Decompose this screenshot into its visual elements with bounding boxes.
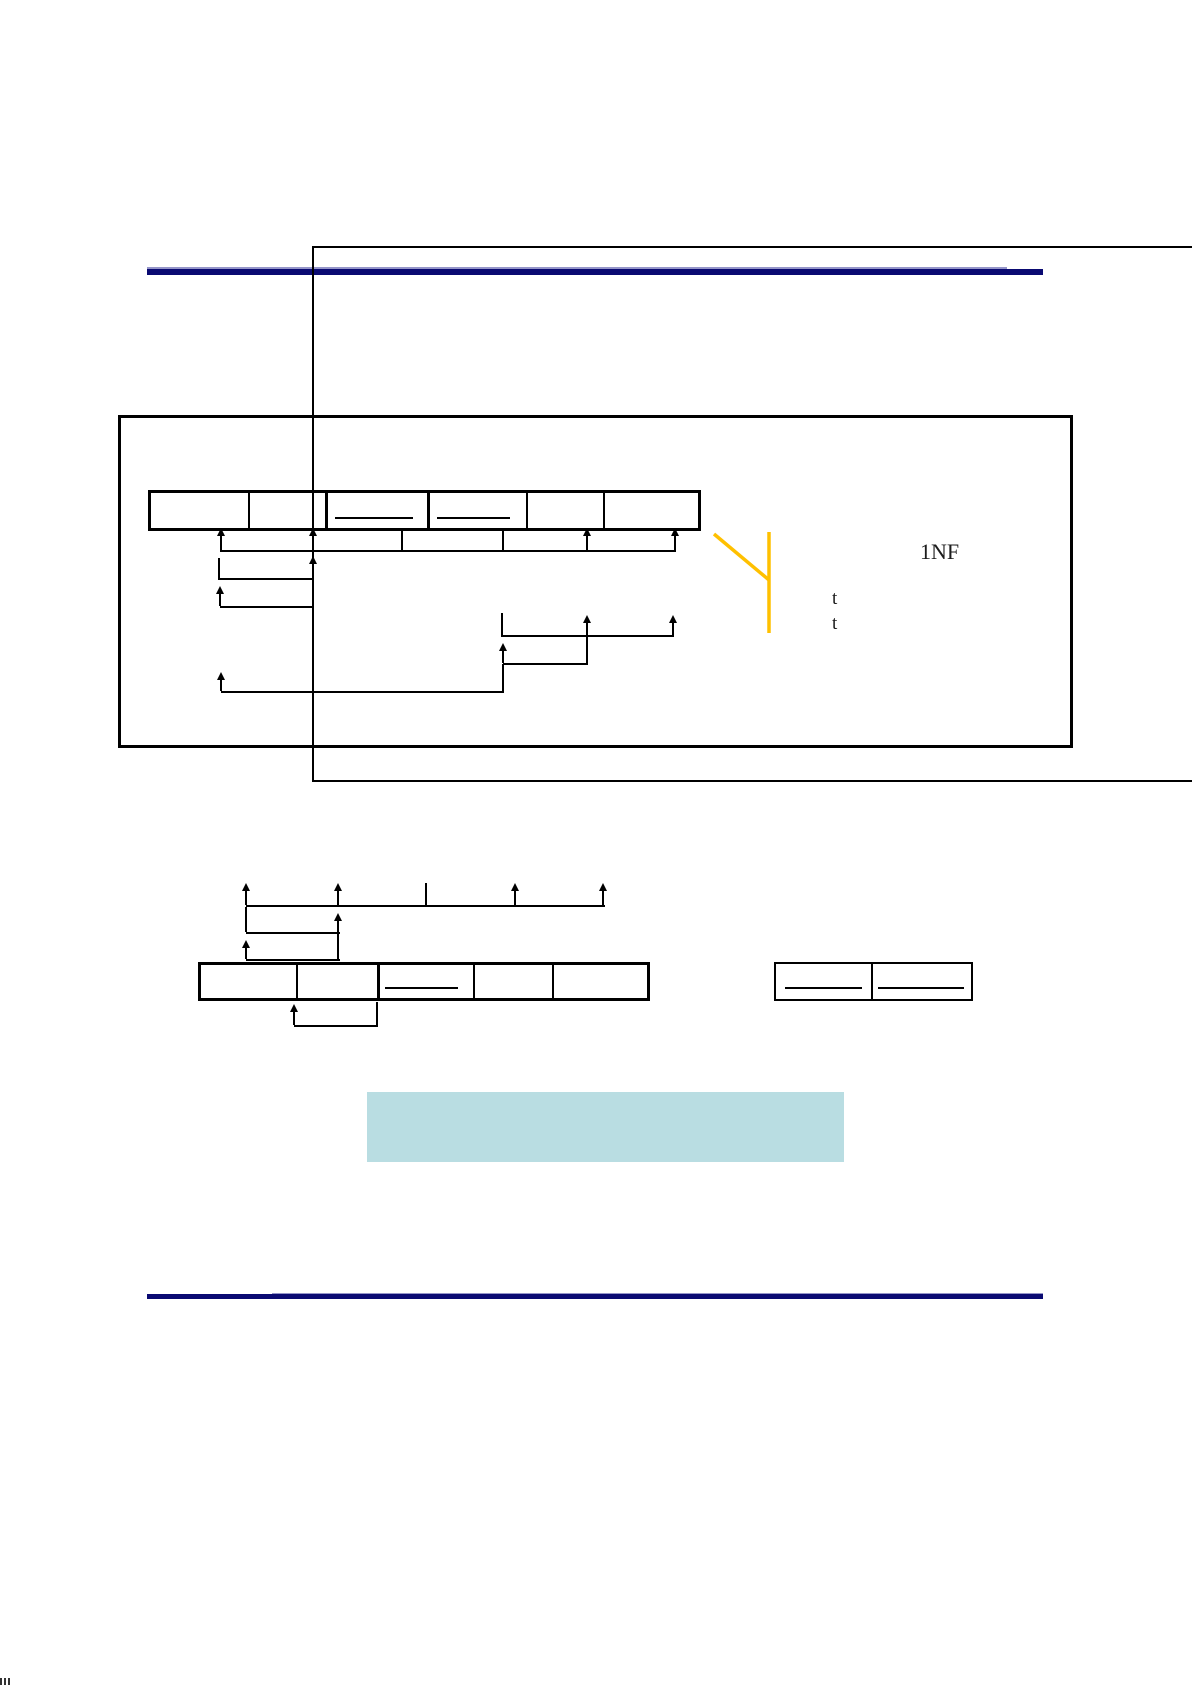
relation-row-3 bbox=[774, 962, 973, 1001]
relation-row-1 bbox=[148, 490, 701, 531]
fd4-arrow-shaft bbox=[586, 622, 588, 635]
fd3-line bbox=[220, 606, 314, 608]
fd4-connector bbox=[501, 613, 503, 637]
fd4-arrow-shaft bbox=[672, 622, 674, 635]
fd9-line bbox=[246, 959, 340, 961]
fd10-connector bbox=[376, 1002, 378, 1025]
fd7-connector bbox=[425, 883, 427, 905]
key-underline bbox=[335, 517, 413, 519]
fd8-line bbox=[246, 932, 340, 934]
document-page: 1NF t t bbox=[0, 0, 1192, 1685]
relation-row-1-divider bbox=[248, 493, 250, 528]
fd1-connector bbox=[401, 528, 403, 552]
relation-row-2 bbox=[198, 962, 650, 1001]
relation-row-1-divider bbox=[603, 493, 605, 528]
fd7-arrow-shaft bbox=[514, 890, 516, 905]
fd8-connector bbox=[245, 907, 247, 932]
relation-row-2-divider bbox=[473, 965, 475, 998]
key-underline bbox=[437, 517, 510, 519]
fd1-line bbox=[221, 550, 676, 552]
relation-row-3-divider bbox=[871, 964, 873, 999]
fd2-connector bbox=[218, 558, 220, 580]
fd3-arrow-shaft bbox=[219, 593, 221, 606]
page-corner-artifact bbox=[0, 1678, 10, 1685]
relation-row-1-divider bbox=[526, 493, 528, 528]
key-underline bbox=[785, 987, 862, 989]
normal-form-label: 1NF bbox=[920, 539, 959, 565]
relation-row-2-divider bbox=[552, 965, 554, 998]
fd10-line bbox=[294, 1025, 378, 1027]
fd1-arrow-shaft bbox=[312, 535, 314, 552]
fd9-connector bbox=[337, 934, 339, 959]
fd10-arrow-shaft bbox=[293, 1011, 295, 1025]
key-underline bbox=[878, 987, 964, 989]
fd8-arrow-shaft bbox=[337, 920, 339, 932]
fd1-arrow-shaft bbox=[586, 535, 588, 552]
relation-row-2-divider bbox=[296, 965, 298, 998]
fd5-line bbox=[503, 663, 588, 665]
orange-diagonal-line bbox=[714, 534, 769, 580]
figure-border bbox=[118, 415, 1073, 748]
highlight-box bbox=[367, 1092, 844, 1162]
relation-row-2-divider bbox=[377, 965, 380, 998]
fd2-line bbox=[219, 578, 314, 580]
tuple-label-2: t bbox=[832, 614, 837, 633]
fd5-arrow-shaft bbox=[502, 650, 504, 663]
orange-branch-mark bbox=[700, 520, 790, 645]
fd4-line bbox=[502, 635, 674, 637]
relation-row-1-divider bbox=[325, 493, 328, 528]
fd9-arrow-shaft bbox=[245, 947, 247, 959]
fd2-arrow-shaft bbox=[312, 563, 314, 578]
fd7-arrow-shaft bbox=[602, 890, 604, 905]
fd1-connector bbox=[502, 528, 504, 552]
fd7-arrow-shaft bbox=[245, 890, 247, 905]
fd1-arrow-shaft bbox=[674, 535, 676, 552]
fd5-connector bbox=[586, 636, 588, 663]
fd6-connector bbox=[502, 664, 504, 691]
tuple-label-1: t bbox=[832, 589, 837, 608]
fd6-arrow-shaft bbox=[220, 679, 222, 691]
footer-divider bbox=[147, 1294, 1043, 1299]
key-underline bbox=[385, 987, 458, 989]
fd6-line bbox=[221, 691, 504, 693]
relation-row-1-divider bbox=[427, 493, 430, 528]
fd1-arrow-shaft bbox=[220, 535, 222, 552]
fd7-arrow-shaft bbox=[337, 890, 339, 905]
fd7-line bbox=[246, 905, 605, 907]
